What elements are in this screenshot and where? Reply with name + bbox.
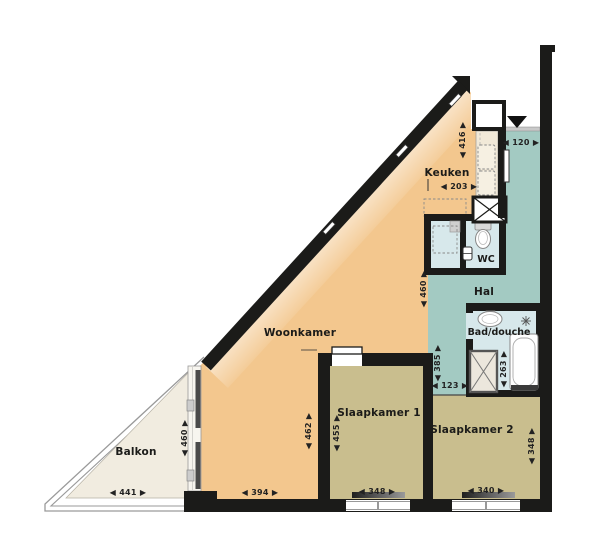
shower-head-icon	[521, 316, 531, 326]
stove-icon	[478, 171, 495, 195]
dim-hal-depth: ◀ 460 ▶	[419, 270, 428, 307]
dim-keuken-width: ◀ 203 ▶	[441, 182, 478, 191]
dim-entree-width: ◀ 120 ▶	[503, 138, 540, 147]
dim-bad-depth: ◀ 263 ▶	[499, 350, 508, 387]
shaft-x-icon-bath	[470, 351, 497, 392]
room-label-wc: WC	[477, 254, 494, 265]
shower-screen	[511, 385, 538, 390]
toilet-icon	[475, 222, 491, 249]
room-label-hal: Hal	[474, 286, 494, 298]
slaapkamer1-door	[332, 347, 362, 366]
dim-woonkamer-depth: ◀ 462 ▶	[304, 412, 313, 449]
slaapkamer1-left-wall	[318, 353, 330, 499]
floor-plan: Woonkamer Keuken Hal WC Bad/douche Slaap…	[0, 0, 600, 558]
dim-slaapkamer1-width: ◀ 348 ▶	[359, 487, 396, 496]
dim-hal-passage-width: ◀ 123 ▶	[432, 381, 469, 390]
corner-wall-step	[184, 491, 217, 500]
dim-woonkamer-width: ◀ 394 ▶	[242, 488, 279, 497]
floor-plan-svg: Woonkamer Keuken Hal WC Bad/douche Slaap…	[0, 0, 600, 558]
room-label-slaapkamer2: Slaapkamer 2	[430, 424, 514, 436]
window-panel	[196, 370, 201, 428]
window-handle-icon	[187, 470, 194, 481]
bathtub-icon	[510, 334, 538, 390]
front-door-leaf	[504, 150, 509, 182]
kitchen-counter	[476, 131, 498, 196]
washbasin-icon	[478, 311, 502, 327]
shaft-box-entry	[474, 102, 504, 129]
room-label-bad-douche: Bad/douche	[468, 327, 531, 338]
window-handle-icon	[187, 400, 194, 411]
door-leaf	[332, 347, 362, 354]
window-panel	[196, 442, 201, 489]
room-label-keuken: Keuken	[424, 167, 469, 179]
dim-balkon-width: ◀ 441 ▶	[110, 488, 147, 497]
right-exterior-wall	[540, 45, 552, 512]
boiler-icon	[450, 221, 460, 232]
dim-keuken-depth: ◀ 416 ▶	[458, 121, 467, 158]
right-wall-cap	[540, 45, 555, 52]
balcony-window-wall	[187, 366, 201, 491]
dim-slaapkamer2-width: ◀ 340 ▶	[468, 486, 505, 495]
room-label-balkon: Balkon	[115, 446, 156, 458]
dim-balkon-depth: ◀ 460 ▶	[180, 419, 189, 456]
sink-icon	[478, 145, 495, 169]
room-slaapkamer1-floor	[330, 366, 423, 499]
dim-slaapkamer2-depth: ◀ 348 ▶	[527, 427, 536, 464]
dim-hal-lower-depth: ◀ 385 ▶	[433, 344, 442, 381]
room-label-slaapkamer1: Slaapkamer 1	[337, 407, 421, 419]
room-label-woonkamer: Woonkamer	[264, 327, 337, 339]
entry-threshold	[504, 127, 540, 131]
dim-slaapkamer1-depth: ◀ 455 ▶	[332, 414, 341, 451]
room-slaapkamer2-floor	[433, 395, 540, 499]
wc-door-handle-icon	[463, 247, 472, 260]
